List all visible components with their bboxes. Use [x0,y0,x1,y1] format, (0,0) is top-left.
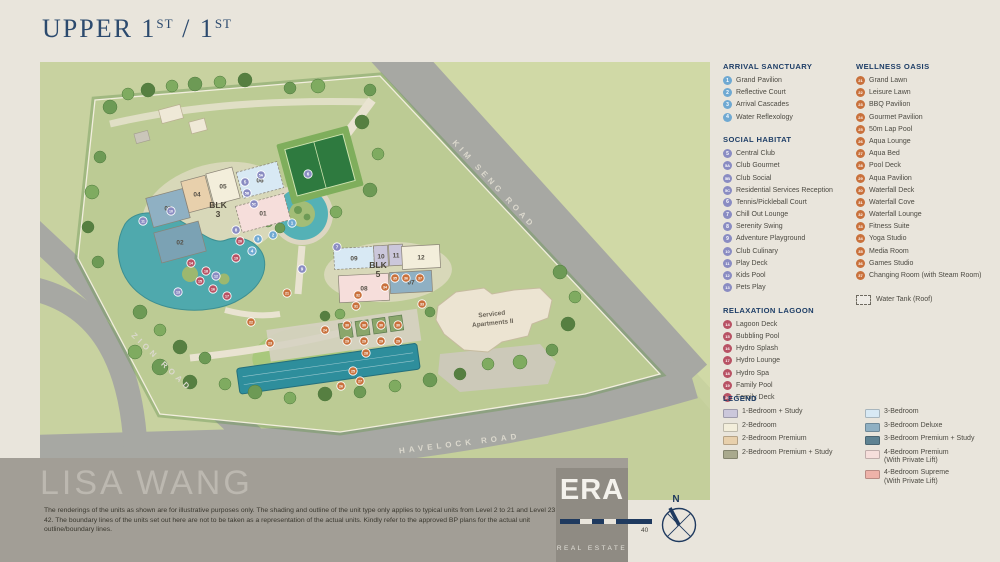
map-marker-number: 6 [307,172,310,177]
facility-number-badge: 25 [856,125,865,134]
facility-number-badge: 5B [723,174,732,183]
facility-number-badge: 22 [856,88,865,97]
map-marker-number: 20 [238,240,242,244]
map-marker-number: 29 [345,340,349,344]
facility-label: Club Gourmet [736,161,780,171]
unit-number: 01 [259,210,267,217]
facility-label: Residential Services Reception [736,186,833,196]
section-wellness: WELLNESS OASIS21Grand Lawn22Leisure Lawn… [856,62,1000,281]
legend-item: 3-Bedroom Deluxe [865,422,997,432]
facility-label: Arrival Cascades [736,100,789,110]
unit-number: 09 [350,255,358,262]
compass-north-label: N [672,494,679,505]
map-marker-number: 12 [214,275,218,279]
map-marker-number: 22 [249,321,253,325]
facility-number-badge: 21 [856,76,865,85]
facility-label: Gourmet Pavilion [869,113,923,123]
map-marker-number: 14 [189,262,193,266]
facility-label: Waterfall Deck [869,186,914,196]
unit-type-label: 4-Bedroom Premium [884,449,949,457]
facility-item: 8Serenity Swing [723,222,856,232]
facility-number-badge: 10 [723,247,732,256]
facility-label: Serenity Swing [736,222,783,232]
map-marker-number: 4 [251,249,254,254]
facility-number-badge: 30 [856,186,865,195]
map-marker-number: 17 [225,295,229,299]
title-sup1: st [156,16,173,31]
facility-item: 4Water Reflexology [723,113,856,123]
facility-item: 2Reflective Court [723,88,856,98]
facility-label: Tennis/Pickleball Court [736,198,807,208]
facility-label: Kids Pool [736,271,766,281]
facility-number-badge: 9 [723,234,732,243]
facility-item: 14Lagoon Deck [723,320,856,330]
map-marker-number: 36 [404,277,408,281]
legend-item: 3-Bedroom [865,408,997,418]
title-part2: / 1 [174,14,215,43]
facility-item: 6Tennis/Pickleball Court [723,198,856,208]
facility-item: 21Grand Lawn [856,76,1000,86]
map-marker-number: 31 [354,305,358,309]
facility-number-badge: 5C [723,186,732,195]
map-marker-number: 5A [259,174,264,178]
map-marker-number: 32 [356,294,360,298]
facility-number-badge: 14 [723,320,732,329]
map-marker-number: 29 [379,340,383,344]
map-marker-number: 16 [211,288,215,292]
unit-type-swatch [865,436,880,445]
map-marker-number: 34 [383,286,387,290]
facility-item: 10Club Culinary [723,247,856,257]
map-marker-number: 15 [198,280,202,284]
facility-item: 36Games Studio [856,259,1000,269]
facility-item: 12Kids Pool [723,271,856,281]
unit-type-legend: LEGEND 1-Bedroom + Study2-Bedroom2-Bedro… [723,394,1000,490]
facility-label: Media Room [869,247,909,257]
facility-number-badge: 19 [723,381,732,390]
map-marker-number: 9 [301,267,304,272]
facility-number-badge: 5 [723,149,732,158]
facility-item: 5AClub Gourmet [723,161,856,171]
legend-item: 2-Bedroom [723,422,855,432]
map-marker-number: 30 [345,324,349,328]
facility-number-badge: 34 [856,234,865,243]
unit-number: 02 [176,239,184,246]
facility-label: Chill Out Lounge [736,210,788,220]
map-marker-number: 5 [244,180,247,185]
facility-item: 30Waterfall Deck [856,186,1000,196]
facility-label: Water Reflexology [736,113,793,123]
facility-label: Hydro Lounge [736,356,780,366]
map-marker-number: 30 [379,324,383,328]
map-marker-number: 5C [252,203,257,207]
map-marker-number: 23 [268,342,272,346]
facility-label: Grand Lawn [869,76,907,86]
facility-number-badge: 7 [723,210,732,219]
facility-item: 23BBQ Pavilion [856,100,1000,110]
map-marker-number: 7 [336,245,339,250]
unit-type-sublabel: (With Private Lift) [884,478,949,486]
facility-label: Club Social [736,174,771,184]
map-marker-number: 13 [176,291,180,295]
facility-number-badge: 23 [856,100,865,109]
map-marker-number: 33 [420,303,424,307]
map-marker-number: 28 [364,352,368,356]
facility-label: Aqua Pavilion [869,174,912,184]
facility-number-badge: 35 [856,247,865,256]
unit-type-swatch [865,450,880,459]
section-title-social: SOCIAL HABITAT [723,135,856,144]
compass-needle [670,508,679,525]
facility-number-badge: 3 [723,100,732,109]
facility-label: Family Pool [736,381,773,391]
facility-item: 3Arrival Cascades [723,100,856,110]
facility-label: Changing Room (with Steam Room) [869,271,981,281]
title-part1: Upper 1 [42,14,156,43]
unit-type-swatch [865,423,880,432]
scale-bar-label: 40 [641,527,648,534]
facility-label: Yoga Studio [869,234,907,244]
map-marker-number: 24 [323,329,327,333]
section-title-relax: RELAXATION LAGOON [723,306,856,315]
unit-type-label: 4-Bedroom Supreme [884,469,949,477]
map-marker-number: 29 [362,340,366,344]
map-marker-number: 5B [245,192,250,196]
facility-number-badge: 33 [856,222,865,231]
legend-column: 3-Bedroom3-Bedroom Deluxe3-Bedroom Premi… [865,408,997,490]
section-arrival: ARRIVAL SANCTUARY1Grand Pavilion2Reflect… [723,62,856,122]
facility-item: 7Chill Out Lounge [723,210,856,220]
facility-item: 16Hydro Splash [723,344,856,354]
unit-type-sublabel: (With Private Lift) [884,457,949,465]
facility-item: 18Hydro Spa [723,369,856,379]
map-marker-number: 35 [393,277,397,281]
facility-number-badge: 8 [723,222,732,231]
section-title-arrival: ARRIVAL SANCTUARY [723,62,856,71]
map-marker-number: 18 [204,270,208,274]
facility-item: 29Aqua Pavilion [856,174,1000,184]
water-tank-legend: Water Tank (Roof) [856,295,1000,305]
site-plan-map: KIM SENG ROADZION ROADHAVELOCK ROAD03040… [40,62,710,500]
section-social: SOCIAL HABITAT5Central Club5AClub Gourme… [723,135,856,293]
map-marker-number: 21 [285,292,289,296]
facility-label: Lagoon Deck [736,320,777,330]
section-title-wellness: WELLNESS OASIS [856,62,1000,71]
facility-label: Hydro Spa [736,369,769,379]
unit-type-label: 3-Bedroom Deluxe [884,422,942,430]
map-marker-number: 30 [396,324,400,328]
watermark-text: LISA WANG [40,464,253,503]
facility-number-badge: 13 [723,283,732,292]
facility-number-badge: 1 [723,76,732,85]
facility-number-badge: 31 [856,198,865,207]
facility-number-badge: 5A [723,161,732,170]
facilities-column-left: ARRIVAL SANCTUARY1Grand Pavilion2Reflect… [723,62,856,416]
water-tank-label: Water Tank (Roof) [876,295,932,305]
facility-item: 31Waterfall Cove [856,198,1000,208]
legend-item: 2-Bedroom Premium [723,435,855,445]
facility-item: 1Grand Pavilion [723,76,856,86]
era-logo-subtitle: REAL ESTATE [556,545,628,552]
page-title: Upper 1st / 1st [42,14,232,44]
compass: N [655,490,703,550]
unit-type-swatch [865,409,880,418]
facility-number-badge: 32 [856,210,865,219]
map-marker-number: 3 [257,237,260,242]
facility-item: 35Media Room [856,247,1000,257]
facility-number-badge: 4 [723,113,732,122]
facility-item: 5Central Club [723,149,856,159]
facility-item: 13Pets Play [723,283,856,293]
unit-type-swatch [723,436,738,445]
water-tank-icon [856,295,871,305]
unit-type-swatch [723,409,738,418]
unit-type-swatch [723,450,738,459]
facility-label: BBQ Pavilion [869,100,910,110]
facility-item: 32Waterfall Lounge [856,210,1000,220]
facility-number-badge: 12 [723,271,732,280]
facility-label: Waterfall Lounge [869,210,922,220]
facility-label: Fitness Suite [869,222,909,232]
facility-label: Pets Play [736,283,766,293]
facility-label: Pool Deck [869,161,901,171]
facility-item: 11Play Deck [723,259,856,269]
facility-label: Leisure Lawn [869,88,911,98]
facility-item: 17Hydro Lounge [723,356,856,366]
facility-number-badge: 24 [856,113,865,122]
scale-bar [560,519,652,524]
facility-item: 26Aqua Lounge [856,137,1000,147]
facility-number-badge: 6 [723,198,732,207]
facility-item: 34Yoga Studio [856,234,1000,244]
map-marker-number: 2 [272,233,275,238]
map-marker-number: 30 [362,324,366,328]
legend-item: 3-Bedroom Premium + Study [865,435,997,445]
unit-type-label: 2-Bedroom Premium [742,435,807,443]
unit-type-swatch [865,470,880,479]
facility-number-badge: 29 [856,174,865,183]
facility-item: 22Leisure Lawn [856,88,1000,98]
disclaimer-text: The renderings of the units as shown are… [44,506,566,535]
facility-label: Reflective Court [736,88,786,98]
site-plan-page: Upper 1st / 1st [0,0,1000,562]
facility-number-badge: 16 [723,344,732,353]
map-marker-number: 26 [339,385,343,389]
legend-title: LEGEND [723,394,1000,403]
unit-type-label: 2-Bedroom [742,422,777,430]
unit-number: 05 [219,183,227,190]
unit-type-label: 2-Bedroom Premium + Study [742,449,832,457]
facility-number-badge: 27 [856,149,865,158]
unit-type-label: 3-Bedroom [884,408,919,416]
unit-number: 08 [360,285,368,292]
facility-item: 37Changing Room (with Steam Room) [856,271,1000,281]
legend-column: 1-Bedroom + Study2-Bedroom2-Bedroom Prem… [723,408,855,490]
unit-type-swatch [723,423,738,432]
facility-label: Play Deck [736,259,768,269]
unit-number: 12 [417,254,425,261]
facility-number-badge: 36 [856,259,865,268]
legend-item: 4-Bedroom Supreme(With Private Lift) [865,469,997,486]
legend-item: 1-Bedroom + Study [723,408,855,418]
map-marker-number: 8 [235,228,238,233]
legend-item: 4-Bedroom Premium(With Private Lift) [865,449,997,466]
map-marker-number: 25 [351,370,355,374]
era-logo-text: ERA [556,474,628,507]
facility-item: 28Pool Deck [856,161,1000,171]
section-relax: RELAXATION LAGOON14Lagoon Deck15Bubbling… [723,306,856,403]
map-marker-number: 10 [169,210,173,214]
facility-item: 27Aqua Bed [856,149,1000,159]
facility-item: 9Adventure Playground [723,234,856,244]
facility-number-badge: 26 [856,137,865,146]
unit-number: 04 [193,191,201,198]
unit-type-label: 1-Bedroom + Study [742,408,803,416]
facility-number-badge: 2 [723,88,732,97]
facility-label: Grand Pavilion [736,76,782,86]
facilities-column-right: WELLNESS OASIS21Grand Lawn22Leisure Lawn… [856,62,1000,305]
facility-number-badge: 15 [723,332,732,341]
map-marker-number: 29 [396,340,400,344]
facility-item: 5BClub Social [723,174,856,184]
facility-item: 24Gourmet Pavilion [856,113,1000,123]
facility-number-badge: 17 [723,356,732,365]
facility-label: Central Club [736,149,775,159]
facility-label: Aqua Lounge [869,137,911,147]
facility-label: Games Studio [869,259,913,269]
facility-label: Hydro Splash [736,344,778,354]
facility-item: 5CResidential Services Reception [723,186,856,196]
map-marker-number: 27 [358,380,362,384]
unit-number: 11 [393,252,400,259]
facility-item: 2550m Lap Pool [856,125,1000,135]
legend-item: 2-Bedroom Premium + Study [723,449,855,459]
facility-number-badge: 18 [723,369,732,378]
facility-item: 15Bubbling Pool [723,332,856,342]
facility-number-badge: 28 [856,161,865,170]
facility-label: Club Culinary [736,247,778,257]
facility-item: 19Family Pool [723,381,856,391]
map-marker-number: 11 [141,220,145,224]
title-sup2: st [215,16,232,31]
facility-number-badge: 37 [856,271,865,280]
facility-label: Adventure Playground [736,234,805,244]
facility-label: Bubbling Pool [736,332,779,342]
unit-type-label: 3-Bedroom Premium + Study [884,435,974,443]
era-logo: ERA REAL ESTATE [556,468,628,562]
map-marker-number: 37 [418,277,422,281]
facility-number-badge: 11 [723,259,732,268]
facility-item: 33Fitness Suite [856,222,1000,232]
facility-label: Aqua Bed [869,149,900,159]
facility-label: 50m Lap Pool [869,125,912,135]
facility-label: Waterfall Cove [869,198,915,208]
map-marker-number: 1 [291,221,294,226]
map-marker-number: 19 [234,257,238,261]
lagoon-island [182,266,198,282]
